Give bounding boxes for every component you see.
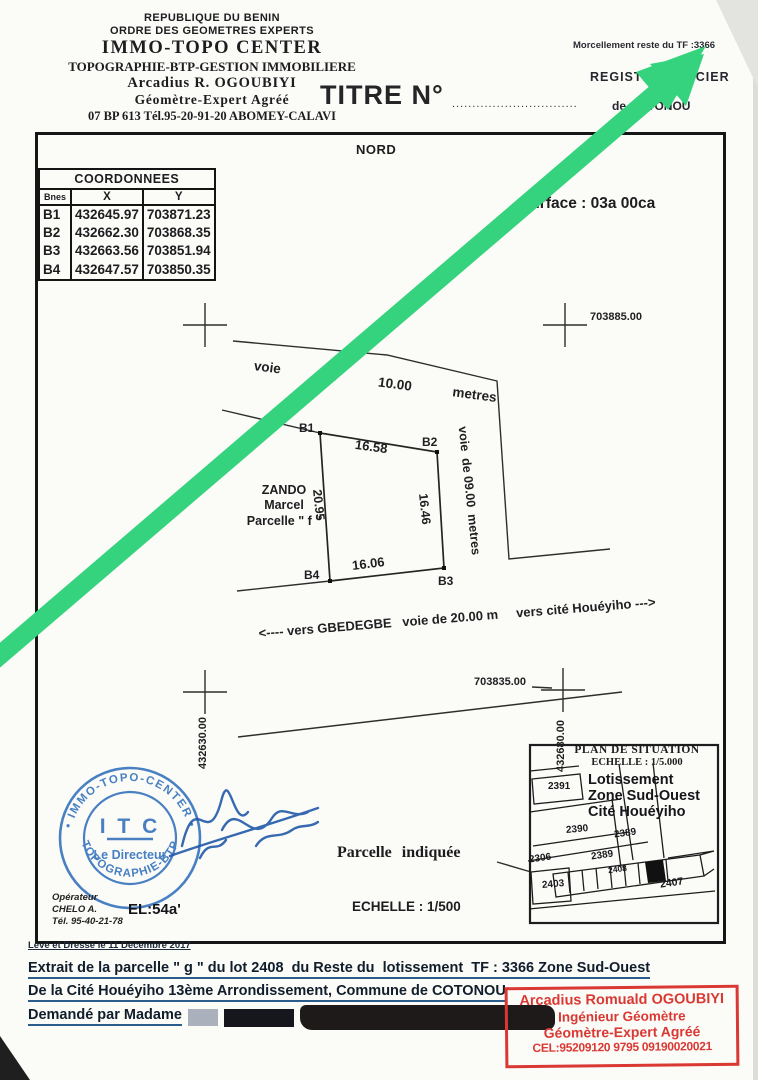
operator-name: CHELO A. [52, 904, 123, 916]
plan-scale-label: ECHELLE : 1/500 [352, 899, 461, 914]
lot-number: 2390 [566, 823, 589, 836]
operator-title: Opérateur [52, 892, 123, 904]
el-value: EL:54a' [128, 901, 181, 918]
point-label-b2: B2 [422, 435, 437, 449]
point-label-b3: B3 [438, 574, 453, 588]
situation-title: PLAN DE SITUATION [556, 744, 718, 756]
owner-firstname: Marcel [238, 498, 330, 513]
parcel-indicated-label: Parcelle indiquée [337, 844, 460, 862]
stamp-role-text: Le Directeur [94, 848, 167, 862]
point-label-b4: B4 [304, 568, 319, 582]
point-label-b1: B1 [299, 421, 314, 435]
owner-parcel: Parcelle " f " [238, 514, 330, 529]
grid-coord-se: 703835.00 [474, 676, 526, 688]
zone-line2: Zone Sud-Ouest [588, 788, 700, 804]
situation-scale: ECHELLE : 1/5.000 [556, 757, 718, 768]
surveyor-red-stamp: Arcadius Romuald OGOUBIYI Ingénieur Géom… [505, 985, 740, 1068]
operator-block: Opérateur CHELO A. Tél. 95-40-21-78 [52, 892, 123, 928]
lot-number: 2403 [542, 878, 565, 891]
red-stamp-name: Arcadius Romuald OGOUBIYI [508, 991, 736, 1010]
footer-line2: De la Cité Houéyiho 13ème Arrondissement… [28, 983, 506, 1002]
footer-line1: Extrait de la parcelle " g " du lot 2408… [28, 960, 650, 979]
footer-line3: Demandé par Madame [28, 1007, 182, 1026]
grid-coord-ne: 703885.00 [590, 311, 642, 323]
scanned-land-title-document: REPUBLIQUE DU BENIN ORDRE DES GEOMETRES … [0, 0, 758, 1080]
operator-phone: Tél. 95-40-21-78 [52, 916, 123, 928]
zone-line3: Cité Houéyiho [588, 804, 685, 820]
survey-date-note: Levé et Dressé le 11 Décembre 2017 [28, 940, 191, 951]
owner-name: ZANDO [238, 483, 330, 498]
lot-number: 2391 [548, 781, 570, 792]
redaction-box-small [188, 1009, 218, 1026]
redaction-box-medium [224, 1009, 294, 1027]
stamp-center-initials: I T C [100, 815, 161, 838]
owner-block: ZANDO Marcel Parcelle " f " [238, 483, 330, 529]
zone-line1: Lotissement [588, 772, 673, 788]
director-signature [160, 758, 330, 878]
scan-edge-shadow [753, 0, 758, 1080]
red-stamp-phone: CEL:95209120 9795 09190020021 [508, 1038, 736, 1054]
